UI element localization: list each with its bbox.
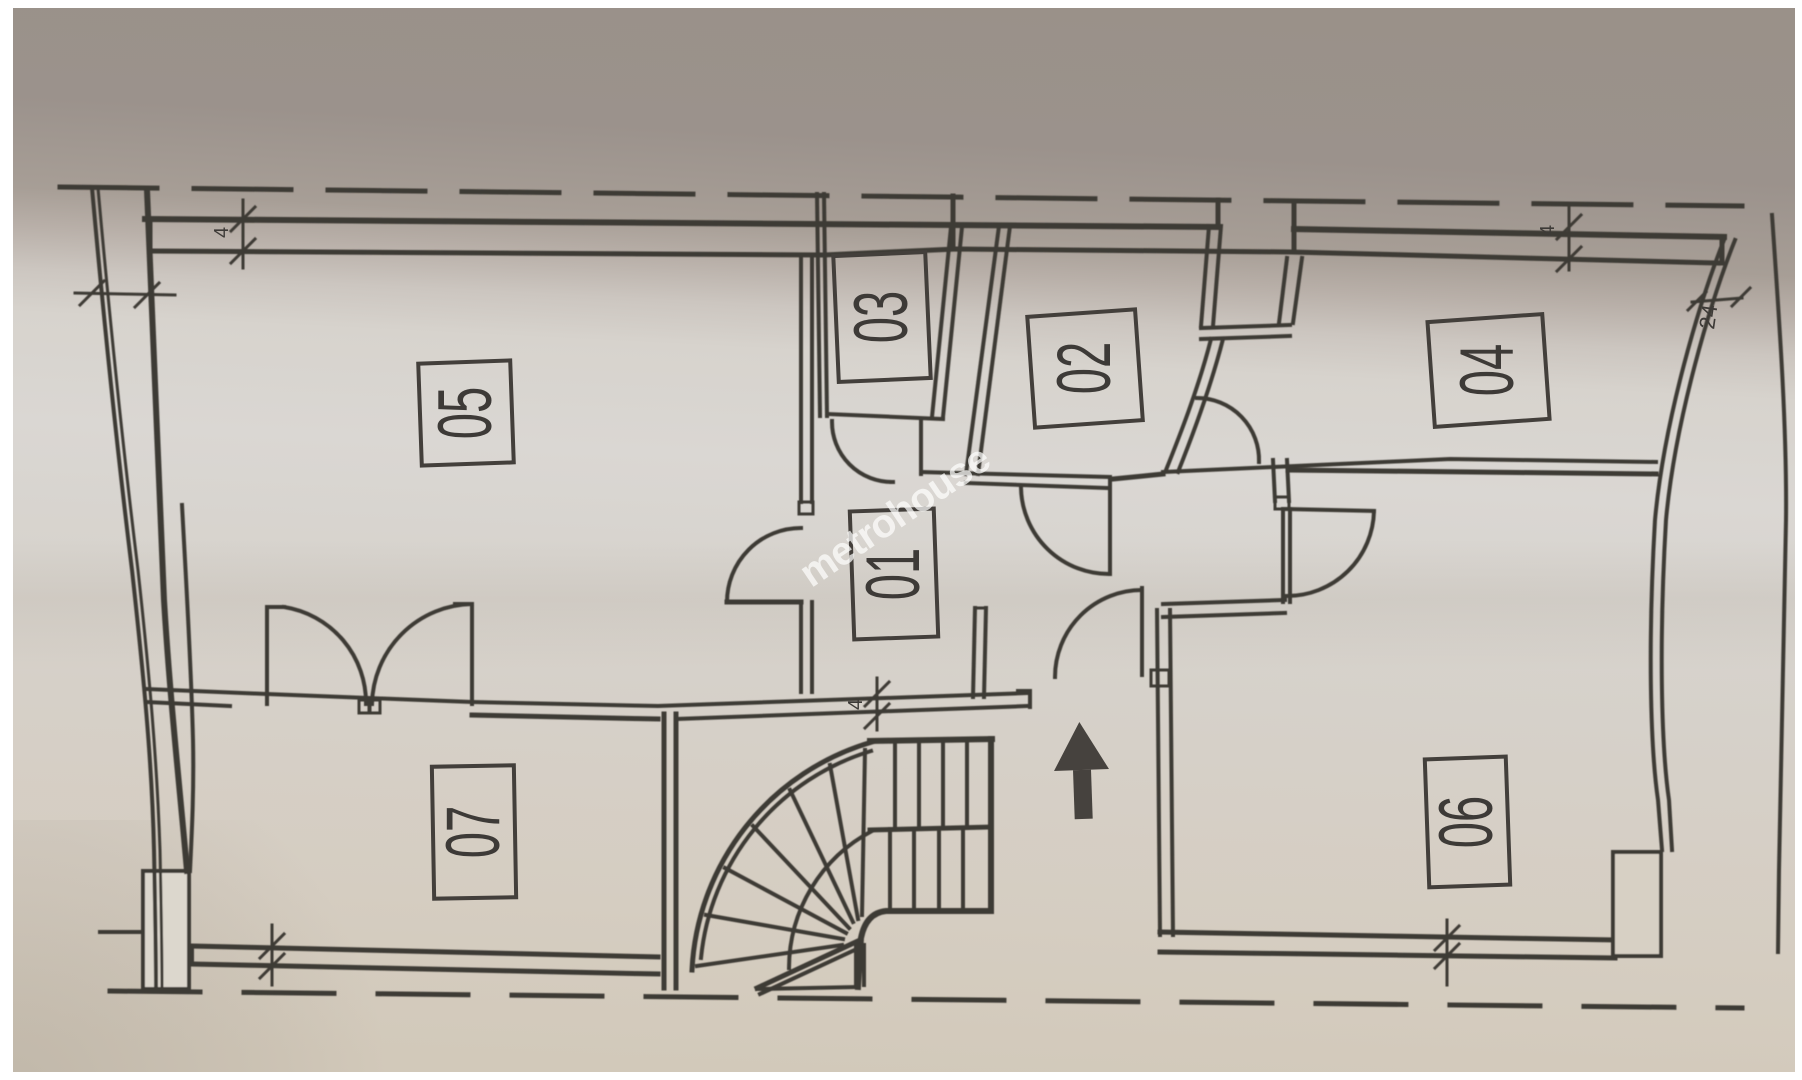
svg-text:07: 07 [432, 806, 516, 858]
svg-text:03: 03 [840, 291, 924, 343]
svg-text:4: 4 [1537, 225, 1559, 236]
svg-text:04: 04 [1446, 344, 1530, 396]
svg-text:02: 02 [1043, 342, 1127, 394]
svg-text:06: 06 [1425, 796, 1509, 848]
svg-text:05: 05 [424, 387, 508, 439]
svg-text:4: 4 [845, 699, 867, 710]
svg-text:4: 4 [211, 227, 233, 238]
svg-text:24: 24 [1694, 303, 1722, 331]
